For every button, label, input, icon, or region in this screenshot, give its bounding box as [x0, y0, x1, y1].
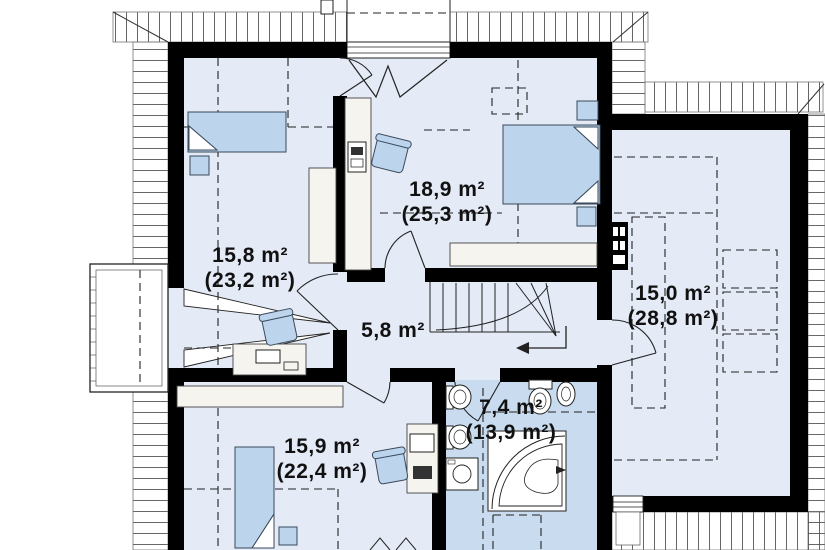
- desk-printer: [348, 142, 366, 172]
- window: [613, 496, 643, 545]
- wall-bedroom2-south-b: [425, 268, 612, 282]
- room-label-hallway-area: 5,8 m²: [361, 319, 425, 342]
- nightstand: [577, 101, 598, 120]
- eave-left-upper: [133, 42, 168, 264]
- room-label-bathroom-total: (13,9 m²): [466, 421, 557, 444]
- wall-top-left: [168, 42, 347, 58]
- balcony: [90, 264, 168, 392]
- room-label-bedroom1-area: 15,8 m²: [212, 244, 288, 267]
- eave-main-right: [612, 42, 645, 114]
- room-label-bedroom2-area: 18,9 m²: [409, 178, 485, 201]
- room-label-bedroom1-total: (23,2 m²): [205, 269, 296, 292]
- eave-wing-bottom: [612, 512, 825, 550]
- bidet: [557, 382, 575, 406]
- wall-top-right: [450, 42, 612, 58]
- wardrobe: [309, 168, 336, 263]
- room-label-bathroom-area: 7,4 m²: [479, 396, 543, 419]
- desk-item: [351, 147, 363, 155]
- wall-south-b: [390, 368, 455, 382]
- long-desk: [345, 98, 371, 270]
- floor-plan: 15,8 m² (23,2 m²) 18,9 m² (25,3 m²) 15,0…: [0, 0, 825, 550]
- room-label-bedroom2-total: (25,3 m²): [402, 203, 493, 226]
- wardrobe: [177, 386, 343, 407]
- nightstand: [190, 156, 209, 175]
- floor-plan-drawing: 15,8 m² (23,2 m²) 18,9 m² (25,3 m²) 15,0…: [0, 0, 825, 550]
- desk-item: [413, 466, 432, 479]
- room-label-bedroom3-area: 15,9 m²: [284, 435, 360, 458]
- wall-wing-top: [612, 114, 808, 130]
- washing-machine: [446, 458, 478, 490]
- balcony-door-floor: [168, 288, 184, 368]
- eave-left-lower: [133, 392, 168, 550]
- chimney: [610, 222, 628, 270]
- wall-wing-right: [790, 114, 808, 512]
- laptop: [256, 350, 280, 363]
- dormer-window: [347, 42, 450, 58]
- washbasin: [446, 385, 471, 409]
- ridge-chimney: [321, 0, 333, 14]
- wall-left-upper: [168, 42, 184, 288]
- wardrobe: [450, 243, 597, 266]
- nightstand: [279, 527, 297, 545]
- eave-wing-right: [808, 114, 825, 550]
- room-label-right-room-total: (28,8 m²): [628, 307, 719, 330]
- wall-south-c: [500, 368, 612, 382]
- eave-top-left: [113, 12, 347, 42]
- desk-printer: [410, 434, 434, 452]
- door-opening-floor: [597, 318, 612, 366]
- wall-main-right-lower: [597, 365, 612, 550]
- room-label-right-room-area: 15,0 m²: [635, 282, 711, 305]
- room-label-bedroom3-total: (22,4 m²): [277, 460, 368, 483]
- nightstand: [577, 207, 596, 226]
- eave-wing-top: [645, 82, 823, 112]
